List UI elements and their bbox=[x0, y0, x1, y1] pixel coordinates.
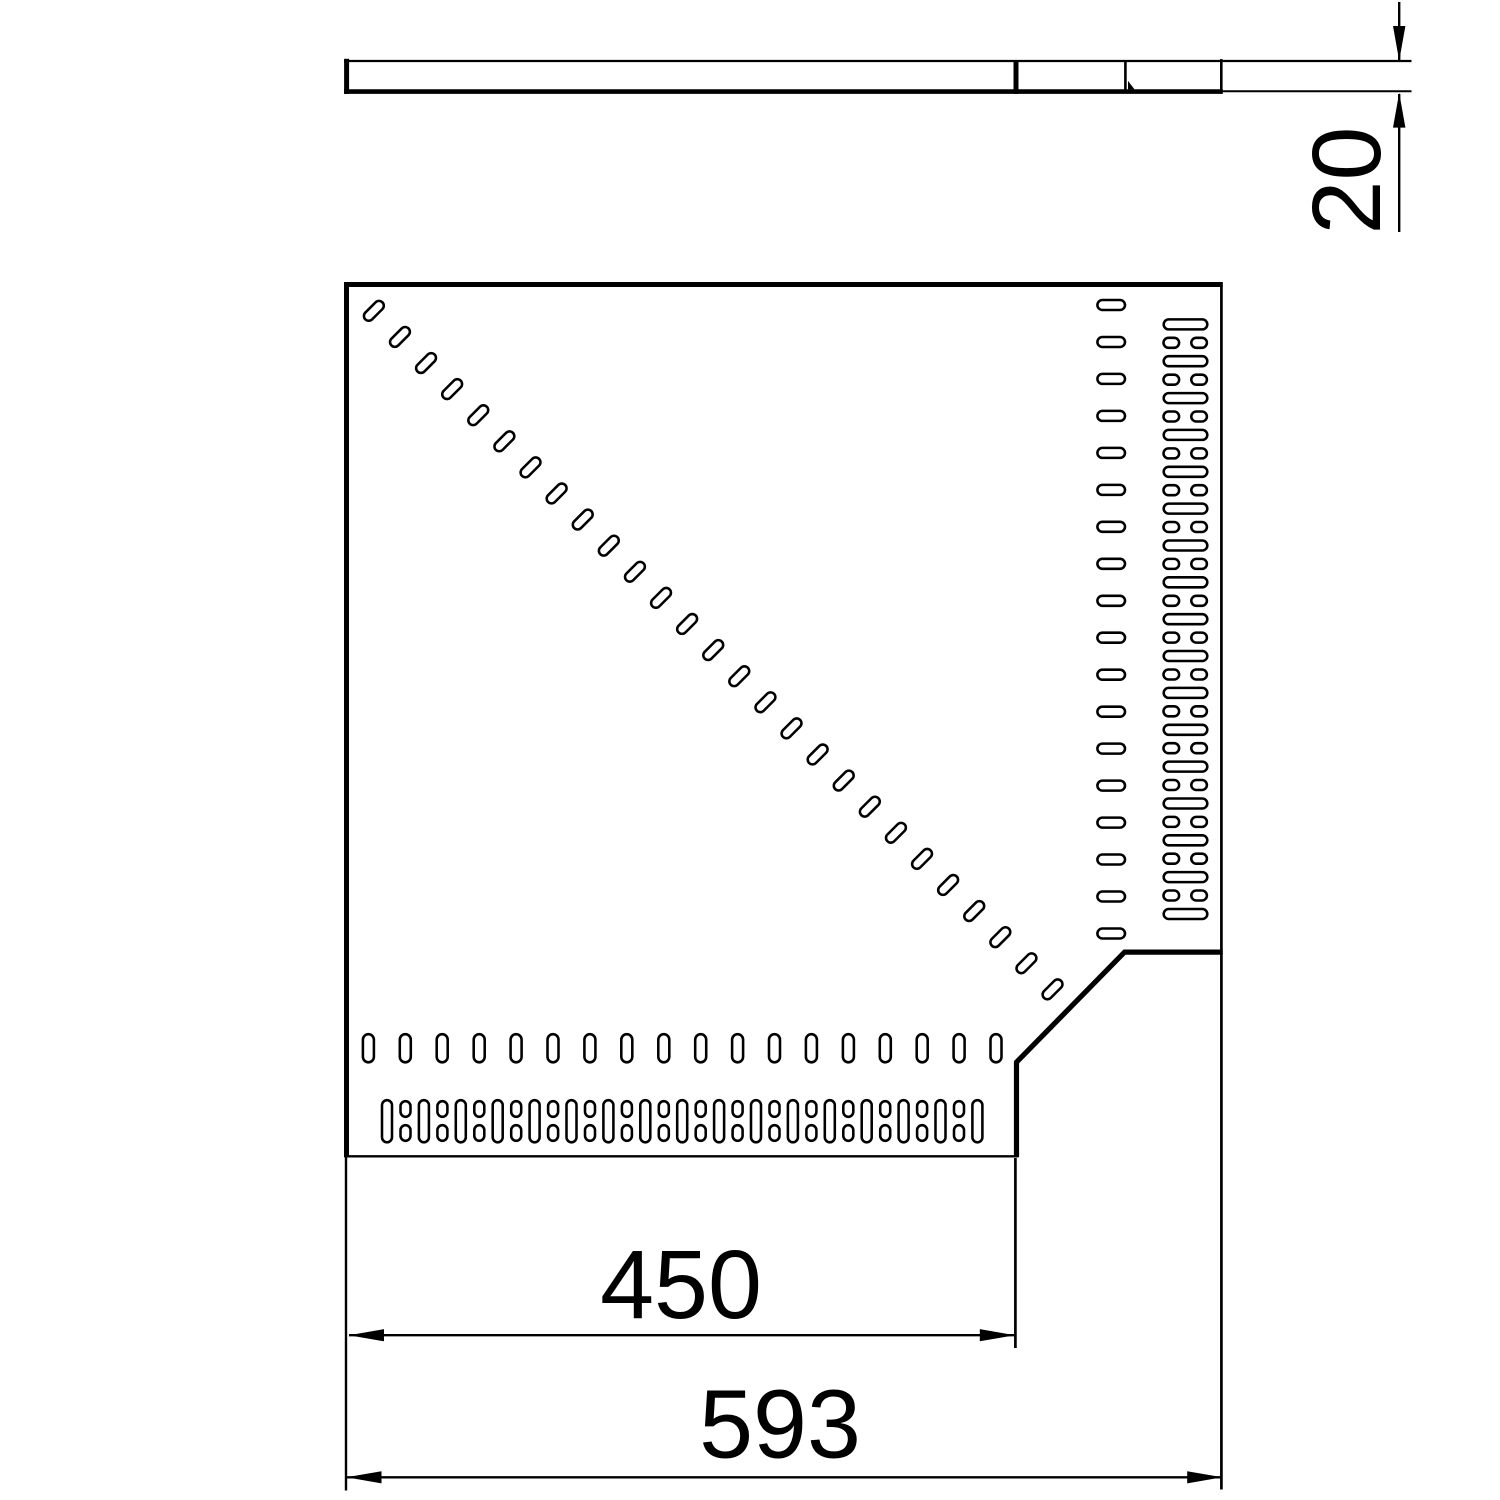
svg-text:593: 593 bbox=[699, 1370, 861, 1479]
svg-text:20: 20 bbox=[1292, 127, 1401, 235]
svg-text:450: 450 bbox=[600, 1230, 762, 1339]
